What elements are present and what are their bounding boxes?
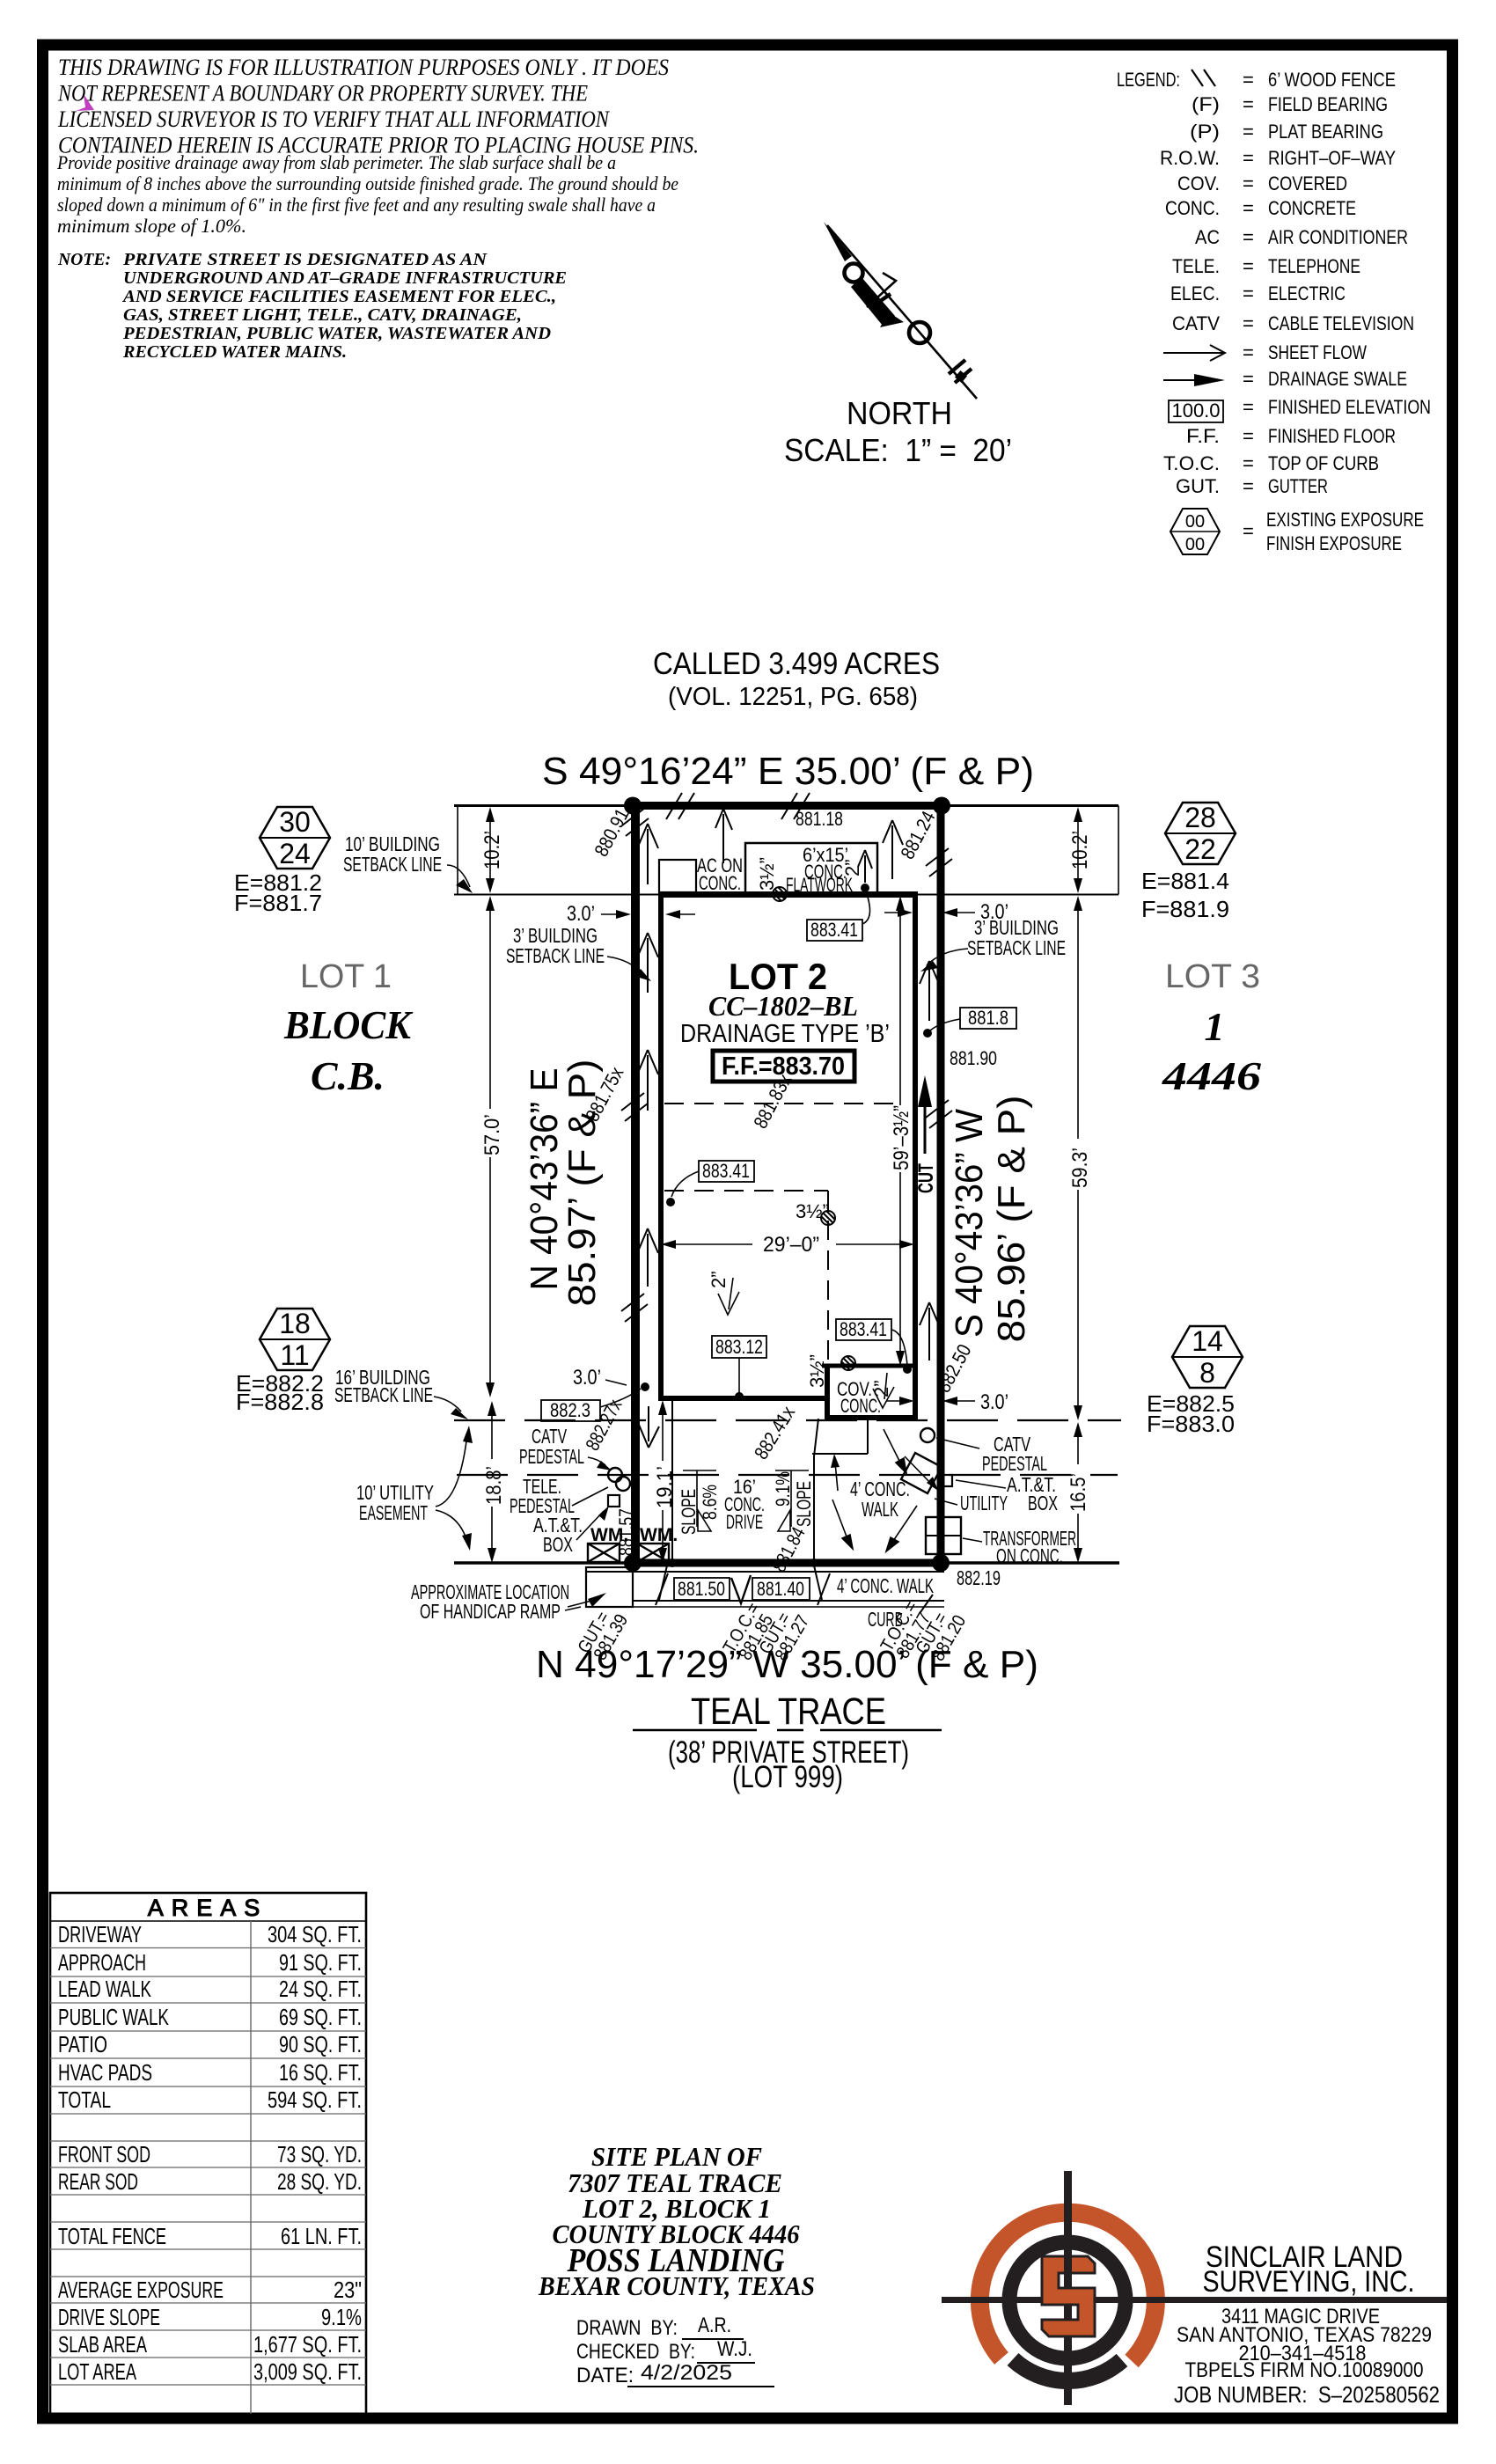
svg-text:=: = xyxy=(1243,255,1254,277)
svg-text:=: = xyxy=(1243,312,1254,334)
svg-text:90 SQ. FT.: 90 SQ. FT. xyxy=(279,2031,362,2057)
svg-text:DRAINAGE SWALE: DRAINAGE SWALE xyxy=(1268,368,1407,390)
svg-text:16 SQ. FT.: 16 SQ. FT. xyxy=(279,2059,362,2086)
svg-text:COV.: COV. xyxy=(1177,172,1220,194)
svg-text:881.18: 881.18 xyxy=(796,808,843,830)
svg-text:RECYCLED WATER MAINS.: RECYCLED WATER MAINS. xyxy=(122,342,347,362)
svg-text:LOT 1: LOT 1 xyxy=(300,958,392,995)
svg-text:minimum of 8 inches above the: minimum of 8 inches above the surroundin… xyxy=(57,172,678,194)
svg-text:TEAL TRACE: TEAL TRACE xyxy=(691,1690,886,1733)
svg-text:N 40°43’36” E: N 40°43’36” E xyxy=(523,1068,566,1291)
svg-text:BOX: BOX xyxy=(543,1533,573,1556)
svg-text:9.1%: 9.1% xyxy=(321,2304,362,2330)
svg-text:4446: 4446 xyxy=(1162,1053,1261,1098)
svg-text:CONCRETE: CONCRETE xyxy=(1268,197,1356,219)
svg-text:1: 1 xyxy=(1205,1004,1225,1049)
svg-text:57.0’: 57.0’ xyxy=(480,1114,504,1155)
svg-text:(VOL. 12251, PG. 658): (VOL. 12251, PG. 658) xyxy=(668,683,918,711)
svg-text:=: = xyxy=(1243,197,1254,219)
svg-text:CALLED 3.499 ACRES: CALLED 3.499 ACRES xyxy=(653,647,940,681)
svg-text:NORTH: NORTH xyxy=(847,395,952,431)
svg-text:FIELD BEARING: FIELD BEARING xyxy=(1268,93,1388,115)
svg-text:FINISH EXPOSURE: FINISH EXPOSURE xyxy=(1266,532,1402,554)
svg-text:DRAINAGE TYPE ’B’: DRAINAGE TYPE ’B’ xyxy=(680,1020,890,1048)
svg-text:PUBLIC WALK: PUBLIC WALK xyxy=(58,2004,169,2030)
svg-text:29’–0”: 29’–0” xyxy=(763,1233,819,1257)
svg-text:TOTAL: TOTAL xyxy=(58,2086,111,2113)
svg-text:=: = xyxy=(1243,121,1254,143)
svg-text:TOTAL FENCE: TOTAL FENCE xyxy=(58,2223,166,2249)
svg-text:LOT 3: LOT 3 xyxy=(1165,958,1260,995)
svg-text:10.2’: 10.2’ xyxy=(480,831,504,869)
svg-text:LEAD WALK: LEAD WALK xyxy=(58,1976,151,2002)
svg-text:DRIVE: DRIVE xyxy=(726,1511,763,1533)
svg-text:881.40: 881.40 xyxy=(757,1578,804,1600)
svg-text:ELEC.: ELEC. xyxy=(1170,282,1220,304)
svg-text:=: = xyxy=(1243,172,1254,194)
svg-text:AIR CONDITIONER: AIR CONDITIONER xyxy=(1268,226,1408,248)
svg-text:=: = xyxy=(1243,147,1254,169)
svg-text:FINISHED FLOOR: FINISHED FLOOR xyxy=(1268,425,1396,447)
svg-text:PRIVATE STREET IS DESIGNATED A: PRIVATE STREET IS DESIGNATED AS AN xyxy=(122,250,488,269)
svg-text:S 49°16’24” E 35.00’ (F & P): S 49°16’24” E 35.00’ (F & P) xyxy=(542,750,1034,793)
svg-text:30: 30 xyxy=(279,806,311,838)
svg-text:TELEPHONE: TELEPHONE xyxy=(1268,255,1360,277)
svg-text:=: = xyxy=(1243,282,1254,304)
svg-text:WALK: WALK xyxy=(862,1498,898,1521)
svg-text:23": 23" xyxy=(334,2277,362,2303)
svg-text:22: 22 xyxy=(1184,833,1216,865)
svg-text:8.6%: 8.6% xyxy=(699,1485,721,1520)
svg-text:85.96’ (F & P): 85.96’ (F & P) xyxy=(990,1096,1033,1343)
svg-text:883.41: 883.41 xyxy=(840,1318,887,1340)
svg-text:100.0: 100.0 xyxy=(1171,400,1220,422)
svg-text:18.8’: 18.8’ xyxy=(482,1466,506,1505)
svg-text:NOT REPRESENT A BOUNDARY OR PR: NOT REPRESENT A BOUNDARY OR PROPERTY SUR… xyxy=(57,81,588,106)
svg-text:CABLE TELEVISION: CABLE TELEVISION xyxy=(1268,312,1414,334)
svg-text:S 40°43’36” W: S 40°43’36” W xyxy=(948,1109,991,1338)
svg-text:11: 11 xyxy=(280,1339,309,1371)
svg-text:F=883.0: F=883.0 xyxy=(1147,1411,1235,1437)
svg-text:=: = xyxy=(1243,475,1254,497)
svg-text:PEDESTRIAN, PUBLIC WATER, WAST: PEDESTRIAN, PUBLIC WATER, WASTEWATER AND xyxy=(122,324,551,343)
svg-text:SURVEYING, INC.: SURVEYING, INC. xyxy=(1203,2265,1415,2299)
svg-text:FRONT SOD: FRONT SOD xyxy=(58,2141,150,2167)
svg-text:Provide positive drainage away: Provide positive drainage away from slab… xyxy=(56,151,616,173)
svg-text:BEXAR COUNTY, TEXAS: BEXAR COUNTY, TEXAS xyxy=(538,2270,815,2301)
svg-text:1,677 SQ. FT.: 1,677 SQ. FT. xyxy=(253,2331,362,2358)
svg-text:SLOPE: SLOPE xyxy=(793,1481,815,1527)
svg-text:=: = xyxy=(1243,368,1254,390)
svg-text:19.1’: 19.1’ xyxy=(653,1466,677,1508)
svg-text:=: = xyxy=(1243,452,1254,474)
svg-text:59’–3½”: 59’–3½” xyxy=(890,1105,913,1170)
svg-text:LOT AREA: LOT AREA xyxy=(58,2358,136,2385)
svg-text:W.J.: W.J. xyxy=(717,2337,752,2361)
svg-text:SLAB AREA: SLAB AREA xyxy=(58,2331,147,2358)
svg-text:REAR SOD: REAR SOD xyxy=(58,2168,138,2195)
svg-text:PATIO: PATIO xyxy=(58,2031,107,2057)
svg-text:3.0’: 3.0’ xyxy=(980,1390,1008,1414)
svg-text:PEDESTAL: PEDESTAL xyxy=(982,1452,1047,1475)
svg-text:=: = xyxy=(1243,396,1254,418)
svg-text:881.8: 881.8 xyxy=(968,1007,1008,1029)
svg-text:69 SQ. FT.: 69 SQ. FT. xyxy=(279,2004,362,2030)
svg-text:=: = xyxy=(1243,520,1254,542)
svg-text:(P): (P) xyxy=(1190,121,1220,143)
svg-text:881.50: 881.50 xyxy=(678,1578,725,1600)
svg-text:SETBACK LINE: SETBACK LINE xyxy=(334,1383,433,1406)
svg-text:BLOCK: BLOCK xyxy=(283,1002,414,1047)
svg-text:59.3’: 59.3’ xyxy=(1068,1148,1092,1188)
svg-text:PLAT BEARING: PLAT BEARING xyxy=(1268,121,1383,143)
svg-text:AVERAGE EXPOSURE: AVERAGE EXPOSURE xyxy=(58,2277,224,2303)
svg-text:LEGEND:: LEGEND: xyxy=(1117,69,1180,91)
svg-text:T.O.C.: T.O.C. xyxy=(1163,452,1220,474)
svg-text:NOTE:: NOTE: xyxy=(57,250,111,269)
svg-text:=: = xyxy=(1243,93,1254,115)
svg-text:AND SERVICE FACILITIES EASEMEN: AND SERVICE FACILITIES EASEMENT FOR ELEC… xyxy=(121,287,556,306)
svg-text:(LOT 999): (LOT 999) xyxy=(732,1760,843,1794)
svg-text:F=881.7: F=881.7 xyxy=(234,890,322,916)
svg-text:OF HANDICAP RAMP: OF HANDICAP RAMP xyxy=(420,1600,561,1623)
svg-text:F=882.8: F=882.8 xyxy=(236,1389,324,1415)
svg-text:SETBACK LINE: SETBACK LINE xyxy=(506,944,605,967)
svg-text:3.0’: 3.0’ xyxy=(573,1366,601,1390)
svg-text:minimum slope of 1.0%.: minimum slope of 1.0%. xyxy=(57,215,246,237)
svg-text:GUTTER: GUTTER xyxy=(1268,475,1328,497)
svg-text:8: 8 xyxy=(1199,1357,1215,1389)
svg-text:sloped down a minimum of 6" in: sloped down a minimum of 6" in the first… xyxy=(57,194,656,216)
svg-text:24 SQ. FT.: 24 SQ. FT. xyxy=(279,1976,362,2002)
svg-text:PEDESTAL: PEDESTAL xyxy=(519,1445,584,1468)
svg-text:00: 00 xyxy=(1185,535,1205,554)
svg-text:EASEMENT: EASEMENT xyxy=(359,1501,428,1524)
svg-text:CONC.: CONC. xyxy=(699,872,741,894)
svg-text:DATE:: DATE: xyxy=(576,2364,634,2387)
svg-text:APPROACH: APPROACH xyxy=(58,1949,146,1976)
svg-text:E=881.4: E=881.4 xyxy=(1141,868,1229,894)
svg-text:BOX: BOX xyxy=(1028,1492,1058,1514)
svg-text:A.R.: A.R. xyxy=(698,2314,731,2337)
svg-text:882.19: 882.19 xyxy=(957,1566,1001,1589)
svg-text:24: 24 xyxy=(279,838,311,869)
svg-text:CC–1802–BL: CC–1802–BL xyxy=(708,990,858,1022)
svg-text:16.5’: 16.5’ xyxy=(1067,1473,1090,1512)
svg-text:COVERED: COVERED xyxy=(1268,172,1347,194)
svg-text:14: 14 xyxy=(1192,1325,1223,1357)
svg-text:594 SQ. FT.: 594 SQ. FT. xyxy=(268,2086,362,2113)
svg-text:THIS DRAWING IS FOR ILLUSTRATI: THIS DRAWING IS FOR ILLUSTRATION PURPOSE… xyxy=(58,55,669,80)
svg-text:=: = xyxy=(1243,226,1254,248)
svg-text:DRIVEWAY: DRIVEWAY xyxy=(58,1921,142,1947)
svg-text:CUT: CUT xyxy=(914,1163,938,1193)
svg-text:CATV: CATV xyxy=(1172,312,1220,334)
svg-text:2”: 2” xyxy=(708,1271,730,1288)
svg-text:=: = xyxy=(1243,425,1254,447)
svg-text:TBPELS FIRM NO.10089000: TBPELS FIRM NO.10089000 xyxy=(1185,2358,1424,2382)
svg-text:ELECTRIC: ELECTRIC xyxy=(1268,282,1346,304)
svg-text:SETBACK LINE: SETBACK LINE xyxy=(343,853,442,876)
svg-text:3.0’: 3.0’ xyxy=(567,902,595,926)
svg-text:882.3: 882.3 xyxy=(550,1399,590,1421)
svg-text:F.F.: F.F. xyxy=(1186,425,1220,447)
svg-text:6’ WOOD FENCE: 6’ WOOD FENCE xyxy=(1268,69,1396,91)
svg-text:3½”: 3½” xyxy=(806,1354,828,1388)
svg-text:(F): (F) xyxy=(1192,93,1220,115)
svg-text:C.B.: C.B. xyxy=(311,1053,385,1098)
svg-text:SHEET FLOW: SHEET FLOW xyxy=(1268,341,1367,363)
svg-text:AC: AC xyxy=(1195,226,1220,248)
svg-text:9.1%: 9.1% xyxy=(772,1471,794,1507)
svg-text:SLOPE: SLOPE xyxy=(678,1489,700,1535)
svg-text:18: 18 xyxy=(279,1308,311,1339)
svg-text:2”: 2” xyxy=(841,859,863,876)
svg-text:RIGHT–OF–WAY: RIGHT–OF–WAY xyxy=(1268,147,1396,169)
svg-text:TOP OF CURB: TOP OF CURB xyxy=(1268,452,1379,474)
svg-text:=: = xyxy=(1243,341,1254,363)
svg-text:DRAWN BY:: DRAWN BY: xyxy=(576,2316,678,2340)
svg-text:883.41: 883.41 xyxy=(702,1160,750,1182)
svg-text:FINISHED ELEVATION: FINISHED ELEVATION xyxy=(1268,396,1431,418)
svg-text:GUT.: GUT. xyxy=(1176,475,1220,497)
svg-text:UTILITY: UTILITY xyxy=(960,1492,1008,1514)
svg-text:883.41: 883.41 xyxy=(810,919,858,941)
svg-text:=: = xyxy=(1243,69,1254,91)
svg-text:4/2/2025: 4/2/2025 xyxy=(641,2361,732,2385)
svg-text:UNDERGROUND AND AT–GRADE INFRA: UNDERGROUND AND AT–GRADE INFRASTRUCTURE xyxy=(123,268,567,288)
svg-text:N 49°17’29” W 35.00’ (F & P): N 49°17’29” W 35.00’ (F & P) xyxy=(536,1643,1038,1686)
svg-text:R.O.W.: R.O.W. xyxy=(1160,147,1220,169)
svg-text:00: 00 xyxy=(1185,512,1205,532)
svg-text:304 SQ. FT.: 304 SQ. FT. xyxy=(268,1921,362,1947)
svg-text:WM.: WM. xyxy=(590,1525,628,1545)
svg-text:3½”: 3½” xyxy=(756,857,778,891)
svg-text:EXISTING EXPOSURE: EXISTING EXPOSURE xyxy=(1266,509,1424,531)
svg-text:SCALE: 1” = 20’: SCALE: 1” = 20’ xyxy=(784,432,1012,468)
svg-text:AREAS: AREAS xyxy=(148,1895,268,1921)
svg-text:CONC.: CONC. xyxy=(1165,197,1220,219)
svg-text:91 SQ. FT.: 91 SQ. FT. xyxy=(279,1949,362,1976)
svg-text:73 SQ. YD.: 73 SQ. YD. xyxy=(277,2141,362,2167)
svg-text:CHECKED BY:: CHECKED BY: xyxy=(576,2340,695,2364)
svg-text:DRIVE SLOPE: DRIVE SLOPE xyxy=(58,2304,160,2330)
svg-text:HVAC PADS: HVAC PADS xyxy=(58,2059,152,2086)
svg-text:883.12: 883.12 xyxy=(715,1336,763,1358)
svg-text:28: 28 xyxy=(1184,802,1216,833)
svg-text:4’ CONC. WALK: 4’ CONC. WALK xyxy=(837,1574,934,1597)
svg-text:28 SQ. YD.: 28 SQ. YD. xyxy=(277,2168,362,2195)
svg-text:TELE.: TELE. xyxy=(1172,255,1220,277)
svg-text:SETBACK LINE: SETBACK LINE xyxy=(967,936,1066,959)
svg-text:JOB NUMBER: S–202580562: JOB NUMBER: S–202580562 xyxy=(1174,2381,1440,2408)
svg-text:F=881.9: F=881.9 xyxy=(1141,896,1229,922)
svg-text:881.90: 881.90 xyxy=(950,1047,997,1069)
svg-text:61 LN. FT.: 61 LN. FT. xyxy=(281,2223,362,2249)
svg-text:GAS, STREET LIGHT, TELE., CATV: GAS, STREET LIGHT, TELE., CATV, DRAINAGE… xyxy=(123,305,522,325)
svg-text:10.2’: 10.2’ xyxy=(1068,831,1092,869)
svg-text:LICENSED SURVEYOR IS TO VERIFY: LICENSED SURVEYOR IS TO VERIFY THAT ALL … xyxy=(57,106,610,132)
svg-text:WM.: WM. xyxy=(640,1525,678,1545)
svg-text:3,009 SQ. FT.: 3,009 SQ. FT. xyxy=(253,2358,362,2385)
